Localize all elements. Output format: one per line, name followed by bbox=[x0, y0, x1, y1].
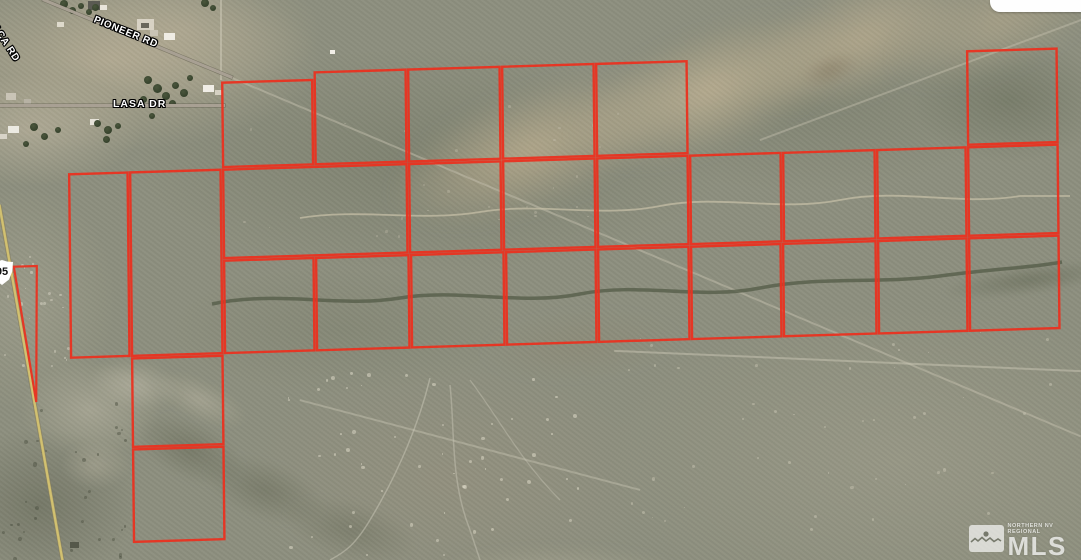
parcel-boundary bbox=[69, 173, 129, 358]
parcel-boundary bbox=[503, 159, 595, 250]
parcel-boundary bbox=[597, 156, 688, 247]
parcel-boundary bbox=[133, 447, 224, 542]
parcel-boundary bbox=[223, 164, 407, 258]
mls-brand: MLS bbox=[1008, 535, 1081, 557]
parcel-boundary bbox=[222, 80, 313, 167]
highway-number: 95 bbox=[0, 267, 8, 278]
mls-logo-icon bbox=[969, 525, 1004, 552]
satellite-map-viewport[interactable]: 95 PIONEER RD LASA DR ACA RD NORTHERN NV… bbox=[0, 0, 1081, 560]
parcel-boundary bbox=[408, 67, 500, 162]
parcel-boundary bbox=[878, 238, 967, 333]
parcel-boundary bbox=[130, 170, 222, 356]
parcel-boundary bbox=[690, 153, 781, 244]
desert-wash bbox=[300, 196, 1070, 218]
parcel-boundary bbox=[969, 236, 1059, 331]
map-control-button[interactable] bbox=[990, 0, 1081, 12]
parcel-boundary bbox=[502, 64, 594, 159]
mls-watermark: NORTHERN NV REGIONAL MLS bbox=[969, 517, 1081, 557]
parcel-boundary-triangle bbox=[14, 266, 38, 403]
parcel-boundary bbox=[783, 241, 876, 336]
parcel-boundary bbox=[315, 70, 407, 165]
road-label-lasa-dr: LASA DR bbox=[113, 98, 166, 110]
parcel-boundary bbox=[967, 49, 1057, 145]
parcel-boundary bbox=[598, 247, 689, 342]
desert-wash bbox=[330, 378, 430, 560]
parcel-boundary bbox=[783, 150, 875, 241]
parcel-boundary bbox=[409, 161, 501, 252]
parcel-boundary bbox=[132, 356, 223, 447]
mountain-sun-icon bbox=[970, 529, 1002, 549]
parcel-overlay bbox=[0, 0, 1081, 560]
parcel-boundary bbox=[224, 258, 314, 353]
desert-wash bbox=[470, 380, 560, 500]
parcel-boundary bbox=[877, 147, 966, 238]
parcel-boundary bbox=[596, 61, 687, 156]
parcel-boundary bbox=[411, 252, 504, 347]
parcel-boundary bbox=[968, 145, 1058, 236]
drainage-channel bbox=[212, 262, 1062, 304]
desert-wash bbox=[450, 385, 480, 560]
